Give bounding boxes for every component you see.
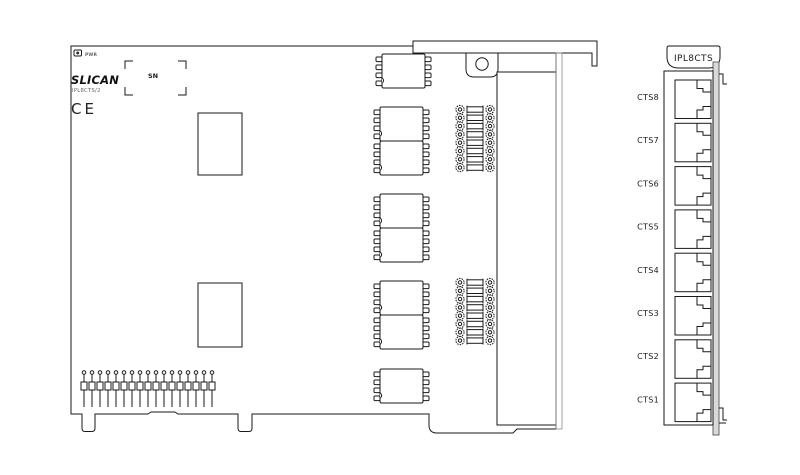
board-bracket-strip [556, 53, 562, 429]
ic-chip [374, 194, 429, 228]
ic-chip [376, 54, 431, 88]
ic-footprint-bottom [198, 283, 242, 347]
pwr-label: PWR [85, 52, 97, 58]
rj45-jack-cts4 [675, 253, 711, 292]
main-board: PWR SLICAN IPL8CTS/2 CE SN [71, 41, 597, 433]
pcb-diagram: PWR SLICAN IPL8CTS/2 CE SN [0, 0, 800, 475]
board-outline [71, 46, 556, 433]
brand-logo: SLICAN [71, 73, 119, 87]
rj45-jack-cts2 [675, 340, 711, 379]
port-label-cts3: CTS3 [637, 309, 659, 318]
jack-block-side-view [497, 72, 556, 425]
model-label: IPL8CTS/2 [72, 88, 101, 94]
front-panel: IPL8CTS CTS8 CTS7 CTS6 CTS5 CTS4 CTS3 CT… [637, 46, 727, 435]
sn-label: SN [148, 72, 158, 80]
panel-tab-label: IPL8CTS [674, 54, 713, 64]
rj45-jack-cts5 [675, 210, 711, 249]
rj45-jack-cts7 [675, 123, 711, 162]
faceplate-hook-bottom [719, 408, 727, 423]
ic-footprint-top [198, 113, 242, 175]
port-label-cts4: CTS4 [637, 266, 659, 275]
ic-chip [374, 315, 429, 349]
port-label-cts6: CTS6 [637, 179, 659, 188]
port-label-cts7: CTS7 [637, 136, 659, 145]
ic-chip [374, 281, 429, 315]
rj45-jack-cts3 [675, 297, 711, 336]
ic-chip [374, 369, 429, 403]
rj45-jack-cts6 [675, 167, 711, 206]
ic-chip [374, 141, 429, 175]
port-label-cts2: CTS2 [637, 352, 659, 361]
port-label-cts1: CTS1 [637, 395, 659, 404]
ic-chip [374, 107, 429, 141]
faceplate-strip [713, 62, 719, 435]
rj45-jack-cts1 [675, 383, 711, 422]
port-label-cts8: CTS8 [637, 93, 659, 102]
port-labels: CTS8 CTS7 CTS6 CTS5 CTS4 CTS3 CTS2 CTS1 [637, 93, 659, 404]
port-label-cts5: CTS5 [637, 223, 659, 232]
mounting-hole [476, 58, 488, 70]
rj45-jack-cts8 [675, 80, 711, 119]
faceplate-hook-top [719, 74, 727, 84]
ce-mark: CE [71, 100, 97, 118]
pcb-diagram-page: PWR SLICAN IPL8CTS/2 CE SN [0, 0, 800, 475]
ic-chip [374, 228, 429, 262]
